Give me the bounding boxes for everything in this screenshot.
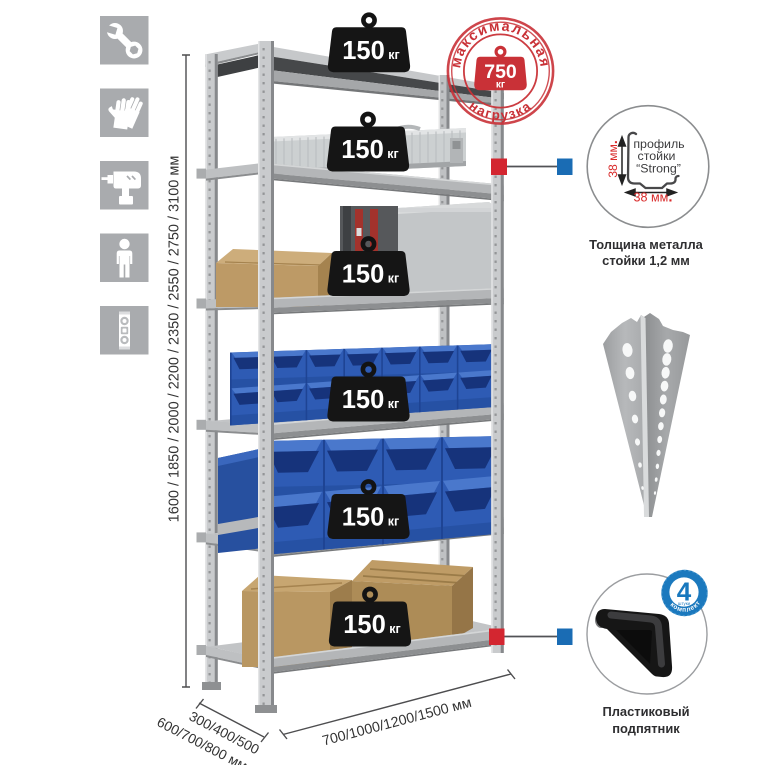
svg-text:38 мм.: 38 мм. bbox=[604, 140, 620, 178]
svg-text:штуки: штуки bbox=[678, 601, 691, 606]
svg-text:Толщина металла: Толщина металла bbox=[589, 237, 704, 252]
svg-text:“Strong”: “Strong” bbox=[636, 162, 681, 176]
svg-text:1600 / 1850 / 2000 / 2200 / 23: 1600 / 1850 / 2000 / 2200 / 2350 / 2550 … bbox=[167, 156, 183, 523]
svg-text:стойки 1,2 мм: стойки 1,2 мм bbox=[602, 253, 690, 268]
svg-text:кг: кг bbox=[496, 80, 505, 91]
svg-text:38 мм.: 38 мм. bbox=[634, 189, 673, 206]
svg-text:подпятник: подпятник bbox=[612, 721, 680, 736]
svg-text:Пластиковый: Пластиковый bbox=[602, 704, 689, 719]
